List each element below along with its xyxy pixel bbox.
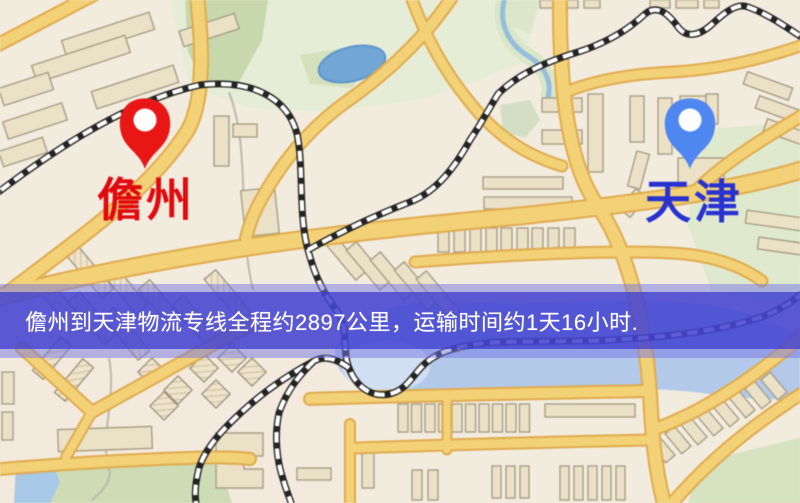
route-info-banner-band: 儋州到天津物流专线全程约2897公里，运输时间约1天16小时.	[0, 292, 800, 349]
map-canvas[interactable]: 儋州 天津	[0, 0, 800, 503]
origin-label: 儋州	[97, 174, 195, 226]
route-info-banner: 儋州到天津物流专线全程约2897公里，运输时间约1天16小时.	[0, 284, 800, 358]
destination-label: 天津	[645, 176, 743, 228]
route-info-text: 儋州到天津物流专线全程约2897公里，运输时间约1天16小时.	[0, 305, 638, 337]
logistics-route-map: 儋州 天津 儋州到天津物流专线全程约2897公里，运输时间约1天16小时.	[0, 0, 800, 503]
